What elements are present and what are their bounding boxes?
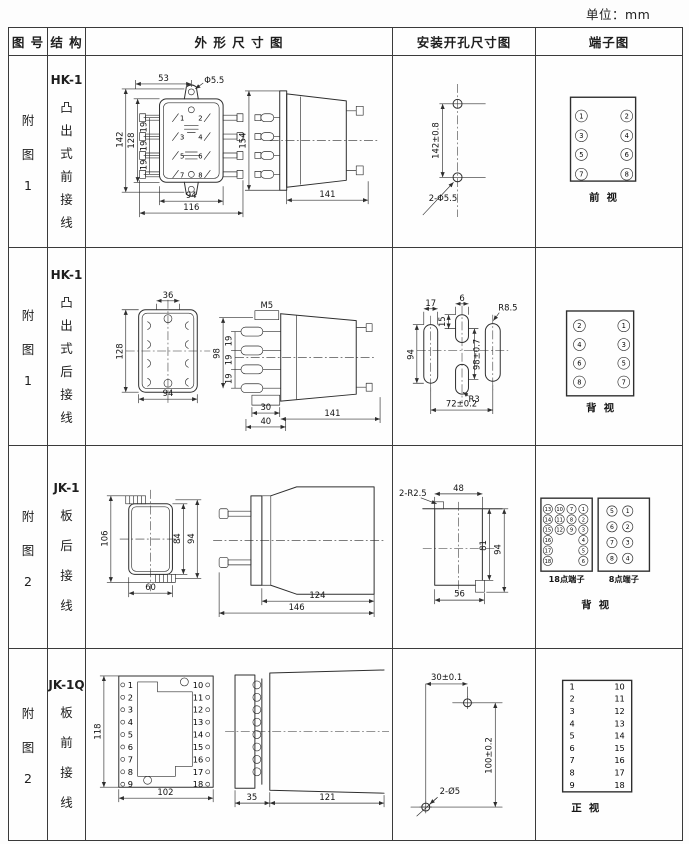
svg-text:17: 17 <box>193 767 203 777</box>
dim-56: 56 <box>454 589 465 599</box>
row2-outline-cell: 36 128 94 M5 <box>86 248 393 446</box>
dim-94: 94 <box>163 388 174 398</box>
front-view: 1357 2468 <box>140 85 243 196</box>
svg-text:4: 4 <box>198 134 202 142</box>
side-pin-bumps <box>253 681 261 776</box>
view-label: 背 视 <box>586 402 615 415</box>
corner-callout: 2-R2.5 <box>399 488 427 498</box>
svg-text:7: 7 <box>610 540 614 547</box>
row1-structure-cell: HK-1 凸出式前接线 <box>48 56 86 248</box>
row2-fig-cell: 附图1 <box>9 248 48 446</box>
row3-terminal-cell: 131415161718 101112 789 123456 18点端子 <box>536 446 682 649</box>
svg-text:4: 4 <box>626 556 630 563</box>
svg-text:4: 4 <box>625 132 629 140</box>
structure-label: 凸出式前接线 <box>60 97 73 231</box>
dim-30: 30 <box>260 402 271 412</box>
svg-text:11: 11 <box>556 517 563 523</box>
svg-text:3: 3 <box>622 341 626 349</box>
dim-94: 94 <box>186 190 197 200</box>
hole-callout: 2-Φ5.5 <box>429 193 457 203</box>
dim-40: 40 <box>260 416 271 426</box>
svg-text:6: 6 <box>198 152 202 160</box>
row3-fig-cell: 附图2 <box>9 446 48 649</box>
row1-outline-cell: 1357 2468 53 Φ5.5 1 <box>86 56 393 248</box>
svg-text:3: 3 <box>582 528 585 534</box>
dim-6: 6 <box>459 293 464 303</box>
svg-text:13: 13 <box>193 717 203 727</box>
outline-drawing-jk1q: 123456789 101112131415161718 118 102 <box>86 649 392 840</box>
svg-text:1: 1 <box>579 112 583 120</box>
front-view: 123456789 101112131415161718 118 102 <box>92 676 213 802</box>
terminal-diagram-18pt-front: 123456789 101112131415161718 正 视 <box>536 649 681 840</box>
svg-text:9: 9 <box>128 779 133 789</box>
svg-text:1: 1 <box>626 508 630 515</box>
svg-text:14: 14 <box>193 730 203 740</box>
svg-text:11: 11 <box>193 692 203 702</box>
fig-label: 附图1 <box>22 110 35 193</box>
svg-text:8: 8 <box>198 171 202 179</box>
dim-84: 84 <box>172 533 182 544</box>
svg-text:18: 18 <box>614 780 624 790</box>
front-dimensions: 53 Φ5.5 142 128 19 19 19 94 116 <box>114 73 243 217</box>
svg-text:8: 8 <box>570 517 573 523</box>
dim-100: 100±0.2 <box>483 737 493 774</box>
dim-94: 94 <box>493 544 503 555</box>
svg-text:16: 16 <box>545 538 552 544</box>
terminal-pins <box>140 114 243 179</box>
page: 单位：mm 图 号 结 构 外 形 尺 寸 图 安装开孔尺寸图 端子图 附图1 … <box>0 0 689 844</box>
svg-text:6: 6 <box>582 559 585 565</box>
svg-text:5: 5 <box>622 360 626 368</box>
svg-text:5: 5 <box>128 730 133 740</box>
terminal-numbers-right: 101112131415161718 <box>614 681 624 790</box>
svg-text:7: 7 <box>622 378 626 386</box>
row4-fig-cell: 附图2 <box>9 649 48 840</box>
dim-128: 128 <box>126 133 136 149</box>
svg-text:4: 4 <box>128 717 133 727</box>
front-view: 106 84 94 60 <box>99 490 201 597</box>
dim-141: 141 <box>324 408 340 418</box>
mounting-drawing-jk1: 2-R2.5 48 81 94 56 <box>393 446 535 648</box>
fig-label: 附图2 <box>22 506 35 589</box>
terminal-diagram-8pt-front: 1357 2468 前 视 <box>536 56 681 247</box>
fig-label: 附图1 <box>22 305 35 388</box>
dim-48: 48 <box>453 483 464 493</box>
outline-drawing-hk1-rear-wired: 36 128 94 M5 <box>86 248 392 445</box>
row1-mounting-cell: 142±0.8 2-Φ5.5 <box>393 56 536 248</box>
svg-text:9: 9 <box>570 780 575 790</box>
dim-141: 141 <box>319 189 335 199</box>
dim-30: 30±0.1 <box>431 672 462 682</box>
header-mounting: 安装开孔尺寸图 <box>393 28 536 56</box>
dim-15: 15 <box>437 316 447 327</box>
svg-text:2: 2 <box>626 524 630 531</box>
svg-text:16: 16 <box>614 755 624 765</box>
svg-text:3: 3 <box>570 706 575 716</box>
row3-structure-cell: JK-1 板后接线 <box>48 446 86 649</box>
svg-text:13: 13 <box>545 507 552 513</box>
pin-numbers-left: 123456789 <box>128 680 133 789</box>
svg-text:7: 7 <box>128 754 133 764</box>
svg-text:8: 8 <box>570 768 575 778</box>
svg-text:18: 18 <box>193 779 203 789</box>
dim-81: 81 <box>478 540 488 551</box>
row3-mounting-cell: 2-R2.5 48 81 94 56 <box>393 446 536 649</box>
svg-text:14: 14 <box>614 731 624 741</box>
header-outline: 外 形 尺 寸 图 <box>86 28 393 56</box>
dim-pitch: 19 19 19 <box>139 122 149 171</box>
header-structure: 结 构 <box>48 28 86 56</box>
svg-text:19: 19 <box>139 122 149 133</box>
row1-fig-cell: 附图1 <box>9 56 48 248</box>
svg-text:13: 13 <box>614 718 624 728</box>
rear-view: 36 128 94 <box>114 290 210 403</box>
svg-text:6: 6 <box>625 151 629 159</box>
row2-structure-cell: HK-1 凸出式后接线 <box>48 248 86 446</box>
row4-outline-cell: 123456789 101112131415161718 118 102 <box>86 649 393 840</box>
pin-dots-right <box>206 683 210 786</box>
svg-text:3: 3 <box>128 705 133 715</box>
label-18pt: 18点端子 <box>549 574 585 584</box>
mounting-drawing-hk1-rear: 17 6 15 94 98±0.7 R8.5 R3 72±0.2 <box>393 248 535 445</box>
svg-text:12: 12 <box>193 705 203 715</box>
terminal-diagram-8pt-rear: 2468 1357 背 视 <box>536 248 681 445</box>
svg-text:17: 17 <box>614 768 624 778</box>
dim-72: 72±0.2 <box>446 399 477 409</box>
view-label: 背 视 <box>581 599 610 612</box>
side-studs <box>219 509 251 568</box>
svg-text:8: 8 <box>625 171 629 179</box>
pin-dots-left <box>121 683 125 786</box>
dim-128: 128 <box>114 343 124 359</box>
radius-r85: R8.5 <box>498 303 517 313</box>
dim-pitch: 19 19 19 <box>224 336 234 385</box>
header-terminal: 端子图 <box>536 28 682 56</box>
svg-text:18: 18 <box>545 559 552 565</box>
svg-text:4: 4 <box>570 718 575 728</box>
svg-text:19: 19 <box>139 141 149 152</box>
mounting-drawing-hk1-front: 142±0.8 2-Φ5.5 <box>393 56 535 247</box>
contact-symbols <box>172 114 210 179</box>
svg-text:4: 4 <box>577 341 581 349</box>
svg-text:1: 1 <box>180 115 184 123</box>
svg-text:19: 19 <box>139 160 149 171</box>
view-label: 前 视 <box>589 191 618 204</box>
svg-text:12: 12 <box>556 528 563 534</box>
dim-102: 102 <box>157 787 173 797</box>
svg-text:16: 16 <box>193 754 203 764</box>
svg-text:1: 1 <box>570 681 575 691</box>
outline-drawing-jk1: 106 84 94 60 124 <box>86 446 392 648</box>
dim-60: 60 <box>145 582 156 592</box>
svg-text:7: 7 <box>579 171 583 179</box>
model-label: JK-1 <box>53 481 79 495</box>
svg-text:2: 2 <box>570 694 575 704</box>
svg-text:8: 8 <box>577 378 581 386</box>
svg-text:9: 9 <box>570 528 573 534</box>
svg-text:2: 2 <box>577 322 581 330</box>
dim-146: 146 <box>289 602 305 612</box>
svg-text:6: 6 <box>577 360 581 368</box>
svg-text:7: 7 <box>570 755 575 765</box>
dim-17: 17 <box>425 298 436 308</box>
terminal-circles <box>575 110 632 180</box>
svg-text:6: 6 <box>610 524 614 531</box>
svg-text:11: 11 <box>614 694 624 704</box>
dim-94: 94 <box>186 533 196 544</box>
pin-numbers-right: 101112131415161718 <box>193 680 203 789</box>
side-pins <box>241 327 281 393</box>
pin-numbers-left: 1357 <box>180 115 184 180</box>
dim-142: 142 <box>114 132 124 148</box>
dim-35: 35 <box>247 792 258 802</box>
svg-text:1: 1 <box>582 507 585 513</box>
terminal-18pt-col3: 789 <box>570 507 573 534</box>
header-fig: 图 号 <box>9 28 48 56</box>
hole-callout: 2-Ø5 <box>440 786 460 796</box>
svg-text:10: 10 <box>614 681 624 691</box>
svg-text:8: 8 <box>610 556 614 563</box>
model-label: HK-1 <box>51 73 83 87</box>
svg-text:15: 15 <box>545 528 552 534</box>
terminal-circles-18pt <box>543 504 588 565</box>
svg-text:14: 14 <box>545 517 552 523</box>
row4-mounting-cell: 30±0.1 100±0.2 2-Ø5 <box>393 649 536 840</box>
stud-label: M5 <box>260 300 273 310</box>
svg-text:5: 5 <box>579 151 583 159</box>
svg-text:19: 19 <box>224 373 234 384</box>
svg-text:15: 15 <box>193 742 203 752</box>
svg-text:10: 10 <box>556 507 563 513</box>
dim-94: 94 <box>405 349 415 360</box>
dim-53: 53 <box>158 73 169 83</box>
label-8pt: 8点端子 <box>609 574 639 584</box>
svg-text:5: 5 <box>582 548 585 554</box>
side-view: 154 141 <box>237 91 379 204</box>
dim-hole: Φ5.5 <box>204 75 224 85</box>
svg-text:15: 15 <box>614 743 624 753</box>
mounting-drawing-jk1q: 30±0.1 100±0.2 2-Ø5 <box>393 649 535 840</box>
svg-text:7: 7 <box>180 171 184 179</box>
dim-98: 98 <box>212 348 222 359</box>
structure-label: 凸出式后接线 <box>60 292 73 426</box>
svg-text:3: 3 <box>579 132 583 140</box>
dim-98: 98±0.7 <box>471 339 481 370</box>
svg-text:3: 3 <box>180 134 184 142</box>
side-view: 35 121 <box>225 670 389 807</box>
side-view: 124 146 <box>213 487 384 617</box>
svg-text:3: 3 <box>626 540 630 547</box>
dim-36: 36 <box>163 290 174 300</box>
unit-note: 单位：mm <box>586 4 650 23</box>
terminal-diagram-18pt-8pt: 131415161718 101112 789 123456 18点端子 <box>536 446 681 648</box>
dim-121: 121 <box>319 792 335 802</box>
svg-text:6: 6 <box>128 742 133 752</box>
svg-text:1: 1 <box>128 680 133 690</box>
svg-text:5: 5 <box>180 152 184 160</box>
side-view: M5 <box>212 300 380 431</box>
svg-text:4: 4 <box>582 538 585 544</box>
side-pins <box>255 114 280 179</box>
row4-terminal-cell: 123456789 101112131415161718 正 视 <box>536 649 682 840</box>
spec-table: 图 号 结 构 外 形 尺 寸 图 安装开孔尺寸图 端子图 附图1 HK-1 凸… <box>8 27 683 841</box>
dim-154: 154 <box>237 133 247 149</box>
dim-118: 118 <box>92 724 102 740</box>
row4-structure-cell: JK-1Q 板前接线 <box>48 649 86 840</box>
dim-106: 106 <box>99 531 109 547</box>
terminal-numbers-left: 123456789 <box>570 681 575 790</box>
svg-text:8: 8 <box>128 767 133 777</box>
svg-text:7: 7 <box>570 507 573 513</box>
row3-outline-cell: 106 84 94 60 124 <box>86 446 393 649</box>
structure-label: 板前接线 <box>60 702 73 811</box>
svg-text:2: 2 <box>582 517 585 523</box>
model-label: HK-1 <box>51 268 83 282</box>
svg-text:2: 2 <box>128 692 133 702</box>
svg-text:2: 2 <box>625 112 629 120</box>
fig-label: 附图2 <box>22 703 35 786</box>
svg-text:12: 12 <box>614 706 624 716</box>
svg-text:2: 2 <box>198 115 202 123</box>
svg-text:19: 19 <box>224 336 234 347</box>
view-label: 正 视 <box>571 802 600 815</box>
dim-124: 124 <box>309 590 325 600</box>
structure-label: 板后接线 <box>60 505 73 614</box>
outline-drawing-hk1-front-wired: 1357 2468 53 Φ5.5 1 <box>86 56 392 247</box>
row2-terminal-cell: 2468 1357 背 视 <box>536 248 682 446</box>
svg-text:6: 6 <box>570 743 575 753</box>
dim-116: 116 <box>183 202 199 212</box>
model-label: JK-1Q <box>48 678 84 692</box>
svg-text:1: 1 <box>622 322 626 330</box>
svg-text:17: 17 <box>545 548 552 554</box>
pin-numbers-right: 2468 <box>198 115 202 180</box>
svg-text:19: 19 <box>224 355 234 366</box>
dim-vertical: 142±0.8 <box>431 122 441 159</box>
row1-terminal-cell: 1357 2468 前 视 <box>536 56 682 248</box>
svg-text:5: 5 <box>610 508 614 515</box>
row2-mounting-cell: 17 6 15 94 98±0.7 R8.5 R3 72±0.2 <box>393 248 536 446</box>
svg-text:5: 5 <box>570 731 575 741</box>
svg-text:10: 10 <box>193 680 203 690</box>
terminal-18pt-col2: 101112 <box>556 507 563 534</box>
